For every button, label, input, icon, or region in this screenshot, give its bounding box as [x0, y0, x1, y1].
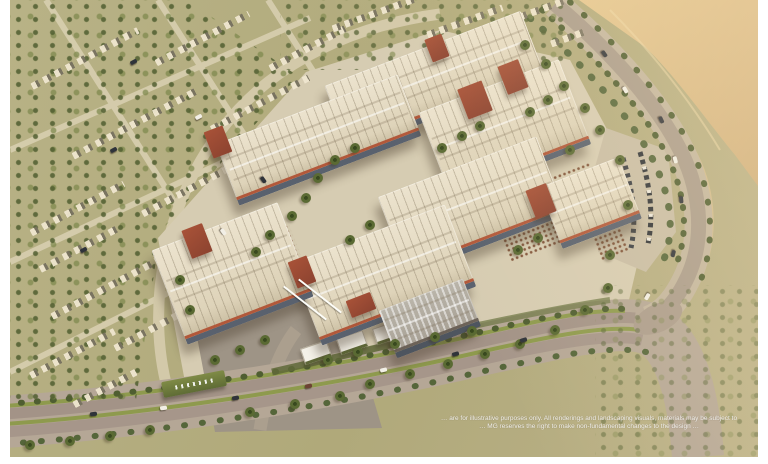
palm-tree	[350, 143, 361, 154]
car	[679, 196, 683, 203]
palm-tree	[365, 379, 376, 390]
palm-tree	[323, 355, 334, 366]
palm-tree	[330, 155, 341, 166]
palm-tree	[185, 305, 196, 316]
palm-tree	[251, 247, 262, 258]
palm-tree	[313, 173, 324, 184]
palm-tree	[335, 391, 346, 402]
white-logo-on-green-hedge-icon	[175, 378, 213, 389]
palm-tree	[365, 220, 376, 231]
palm-tree	[437, 143, 448, 154]
palm-tree	[615, 155, 626, 166]
palm-tree	[513, 245, 524, 256]
palm-tree	[457, 131, 468, 142]
palm-tree	[301, 193, 312, 204]
page-frame: … are for illustrative purposes only. Al…	[0, 0, 768, 464]
palm-tree	[580, 103, 591, 114]
palm-tree	[353, 347, 364, 358]
palm-tree	[475, 121, 486, 132]
palm-tree	[290, 399, 301, 410]
palm-tree	[105, 431, 116, 442]
palm-tree	[390, 339, 401, 350]
palm-tree	[565, 145, 576, 156]
palm-tree	[595, 125, 606, 136]
palm-tree	[559, 81, 570, 92]
palm-tree	[543, 95, 554, 106]
palm-tree	[520, 40, 531, 51]
palm-tree	[541, 59, 552, 70]
palm-tree	[443, 359, 454, 370]
palm-tree	[245, 407, 256, 418]
palm-tree	[480, 349, 491, 360]
palm-tree	[175, 275, 186, 286]
palm-field-southeast	[595, 285, 758, 457]
palm-tree	[603, 283, 614, 294]
palm-tree	[345, 235, 356, 246]
palm-tree	[605, 250, 616, 261]
palm-tree	[550, 325, 561, 336]
palm-tree	[65, 436, 76, 447]
palm-tree	[580, 305, 591, 316]
palm-tree	[287, 211, 298, 222]
disclaimer-line-1: … are for illustrative purposes only. Al…	[433, 415, 745, 423]
palm-tree	[260, 335, 271, 346]
palm-tree	[235, 345, 246, 356]
palm-tree	[430, 332, 441, 343]
palm-tree	[467, 326, 478, 337]
palm-tree	[25, 440, 36, 451]
palm-tree	[210, 355, 221, 366]
palm-tree	[533, 233, 544, 244]
palm-tree	[405, 369, 416, 380]
rendering-scene: … are for illustrative purposes only. Al…	[10, 0, 758, 457]
palm-tree	[623, 200, 634, 211]
disclaimer-line-2: … MG reserves the right to make non-fund…	[433, 423, 745, 431]
disclaimer-text: … are for illustrative purposes only. Al…	[433, 415, 745, 431]
palm-tree	[145, 425, 156, 436]
palm-tree	[525, 107, 536, 118]
palm-tree	[265, 230, 276, 241]
